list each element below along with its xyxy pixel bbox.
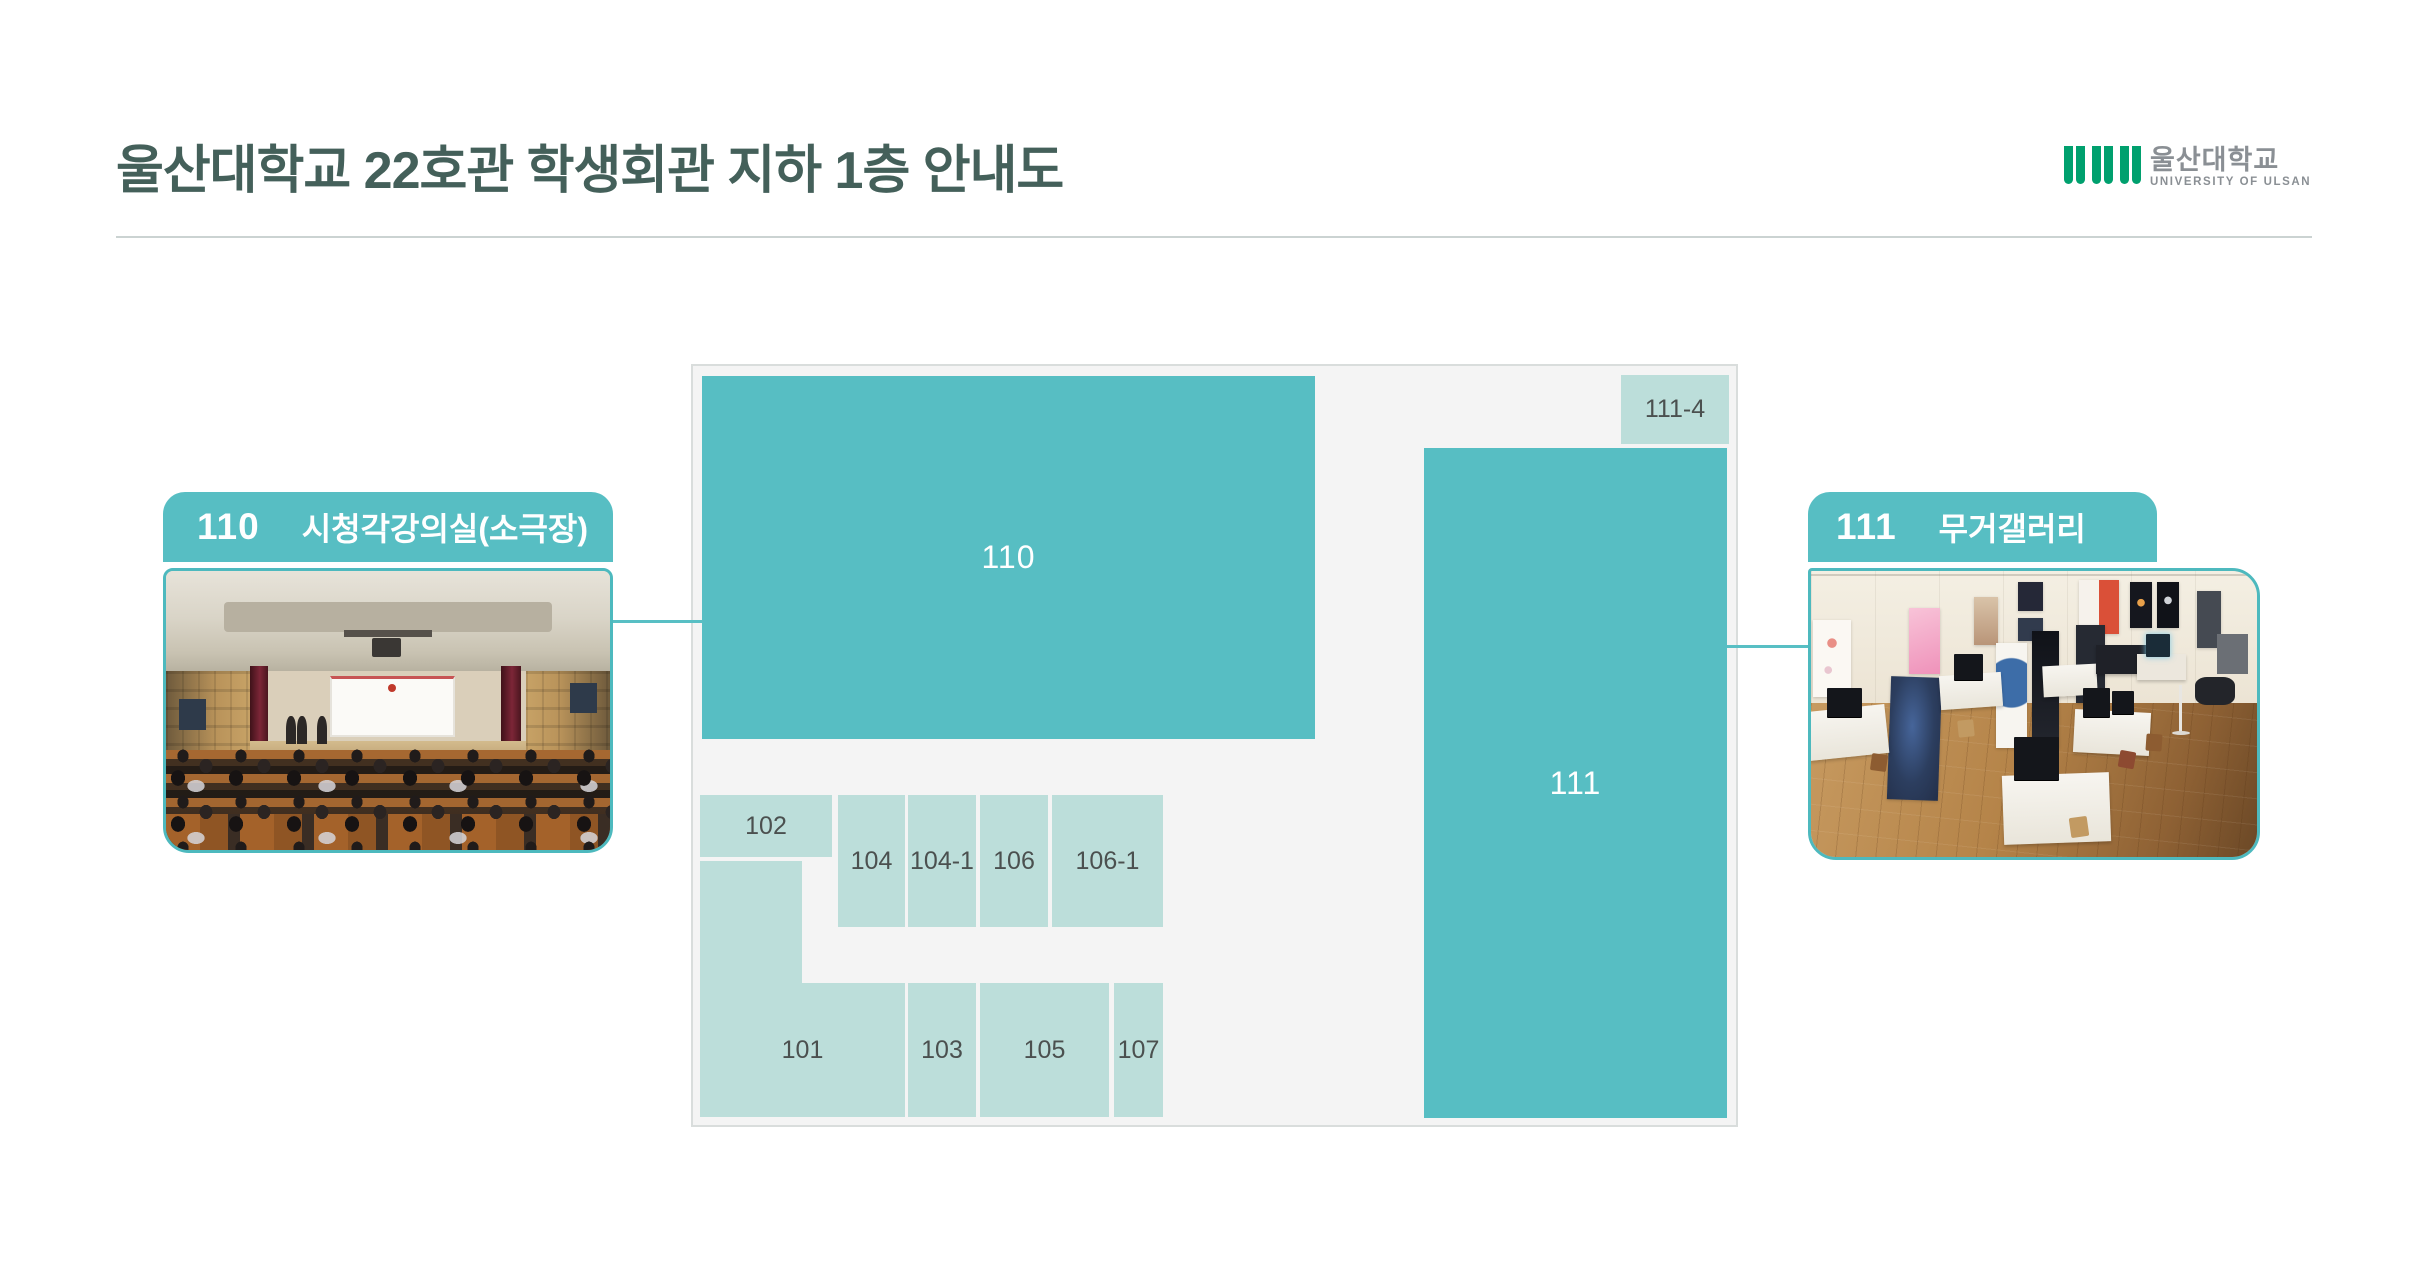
callout-110-connector-line bbox=[613, 620, 703, 623]
gallery-monitor bbox=[2083, 688, 2110, 717]
logo-korean-name: 울산대학교 bbox=[2150, 146, 2311, 174]
page: 울산대학교 22호관 학생회관 지하 1층 안내도 울산대학교 UNIVERSI… bbox=[0, 0, 2428, 1270]
auditorium-presenter bbox=[317, 716, 327, 744]
gallery-poster bbox=[2157, 582, 2179, 628]
header-divider bbox=[116, 236, 2312, 238]
room-102: 102 bbox=[700, 795, 832, 857]
room-104-1: 104-1 bbox=[908, 795, 976, 927]
gallery-chair bbox=[1870, 753, 1888, 772]
gallery-poster bbox=[2130, 582, 2152, 628]
gallery-monitor bbox=[2112, 691, 2134, 714]
gallery-table bbox=[2002, 772, 2111, 844]
room-101: 101 bbox=[700, 983, 905, 1117]
gallery-wall-cabinet bbox=[2217, 634, 2248, 674]
logo-bar bbox=[2092, 146, 2101, 184]
room-106: 106 bbox=[980, 795, 1048, 927]
callout-111-number: 111 bbox=[1836, 506, 1897, 548]
callout-111: 111 무거갤러리 bbox=[1808, 492, 2258, 860]
gallery-banner bbox=[1887, 676, 1943, 801]
room-105: 105 bbox=[980, 983, 1109, 1117]
auditorium-photo bbox=[163, 568, 613, 853]
auditorium-presenter bbox=[286, 716, 296, 744]
gallery-bags bbox=[2195, 677, 2235, 706]
auditorium-wall-right bbox=[526, 671, 610, 755]
auditorium-audience bbox=[166, 744, 610, 850]
callout-110-number: 110 bbox=[197, 506, 260, 548]
gallery-picture-rail bbox=[1811, 574, 2257, 576]
logo-english-name: UNIVERSITY OF ULSAN bbox=[2150, 176, 2311, 188]
room-103: 103 bbox=[908, 983, 976, 1117]
auditorium-presenter bbox=[297, 716, 307, 744]
gallery-monitor bbox=[2146, 634, 2171, 657]
callout-110: 110 시청각강의실(소극장) bbox=[163, 492, 613, 853]
callout-110-header: 110 시청각강의실(소극장) bbox=[163, 492, 613, 562]
auditorium-curtain bbox=[501, 666, 521, 747]
gallery-chair bbox=[2068, 816, 2088, 838]
room-110: 110 bbox=[702, 376, 1315, 739]
logo-bar bbox=[2064, 146, 2073, 184]
gallery-chair bbox=[2145, 733, 2162, 751]
room-101-annex bbox=[700, 861, 802, 985]
gallery-table bbox=[2137, 654, 2186, 680]
gallery-chair bbox=[2117, 750, 2135, 770]
gallery-photo bbox=[1808, 568, 2260, 860]
auditorium-slide-logo bbox=[388, 684, 396, 692]
room-111: 111 bbox=[1424, 448, 1727, 1118]
logo-bar bbox=[2076, 146, 2085, 184]
auditorium-ceiling-recess bbox=[224, 602, 553, 633]
callout-111-header: 111 무거갤러리 bbox=[1808, 492, 2157, 562]
uou-logo-icon bbox=[2064, 146, 2141, 188]
callout-111-name: 무거갤러리 bbox=[1939, 504, 2086, 550]
university-logo: 울산대학교 UNIVERSITY OF ULSAN bbox=[2064, 146, 2311, 188]
gallery-monitor bbox=[1827, 688, 1863, 717]
auditorium-wall-panel bbox=[570, 683, 597, 714]
gallery-poster bbox=[1813, 620, 1851, 697]
page-title: 울산대학교 22호관 학생회관 지하 1층 안내도 bbox=[116, 128, 1063, 203]
logo-text: 울산대학교 UNIVERSITY OF ULSAN bbox=[2150, 146, 2311, 188]
gallery-poster bbox=[1909, 608, 1940, 674]
auditorium-truss bbox=[344, 630, 433, 637]
gallery-monitor bbox=[1954, 654, 1983, 680]
logo-bar bbox=[2132, 146, 2141, 184]
gallery-stand-pole bbox=[2179, 685, 2182, 734]
room-107: 107 bbox=[1114, 983, 1163, 1117]
room-106-1: 106-1 bbox=[1052, 795, 1163, 927]
floor-plan: 110 111-4 111 102 101 104 104-1 106 106-… bbox=[691, 364, 1738, 1127]
auditorium-curtain bbox=[250, 666, 268, 747]
logo-bar bbox=[2120, 146, 2129, 184]
logo-bar bbox=[2104, 146, 2113, 184]
callout-110-name: 시청각강의실(소극장) bbox=[302, 504, 588, 550]
gallery-chair bbox=[1957, 719, 1974, 738]
room-111-4: 111-4 bbox=[1621, 375, 1729, 444]
gallery-poster bbox=[2018, 582, 2043, 611]
auditorium-projector bbox=[372, 638, 401, 658]
callout-111-connector-line bbox=[1727, 645, 1809, 648]
auditorium-wall-panel bbox=[179, 699, 206, 730]
room-104: 104 bbox=[838, 795, 905, 927]
gallery-monitor bbox=[2014, 737, 2059, 780]
gallery-poster bbox=[1974, 597, 1999, 646]
